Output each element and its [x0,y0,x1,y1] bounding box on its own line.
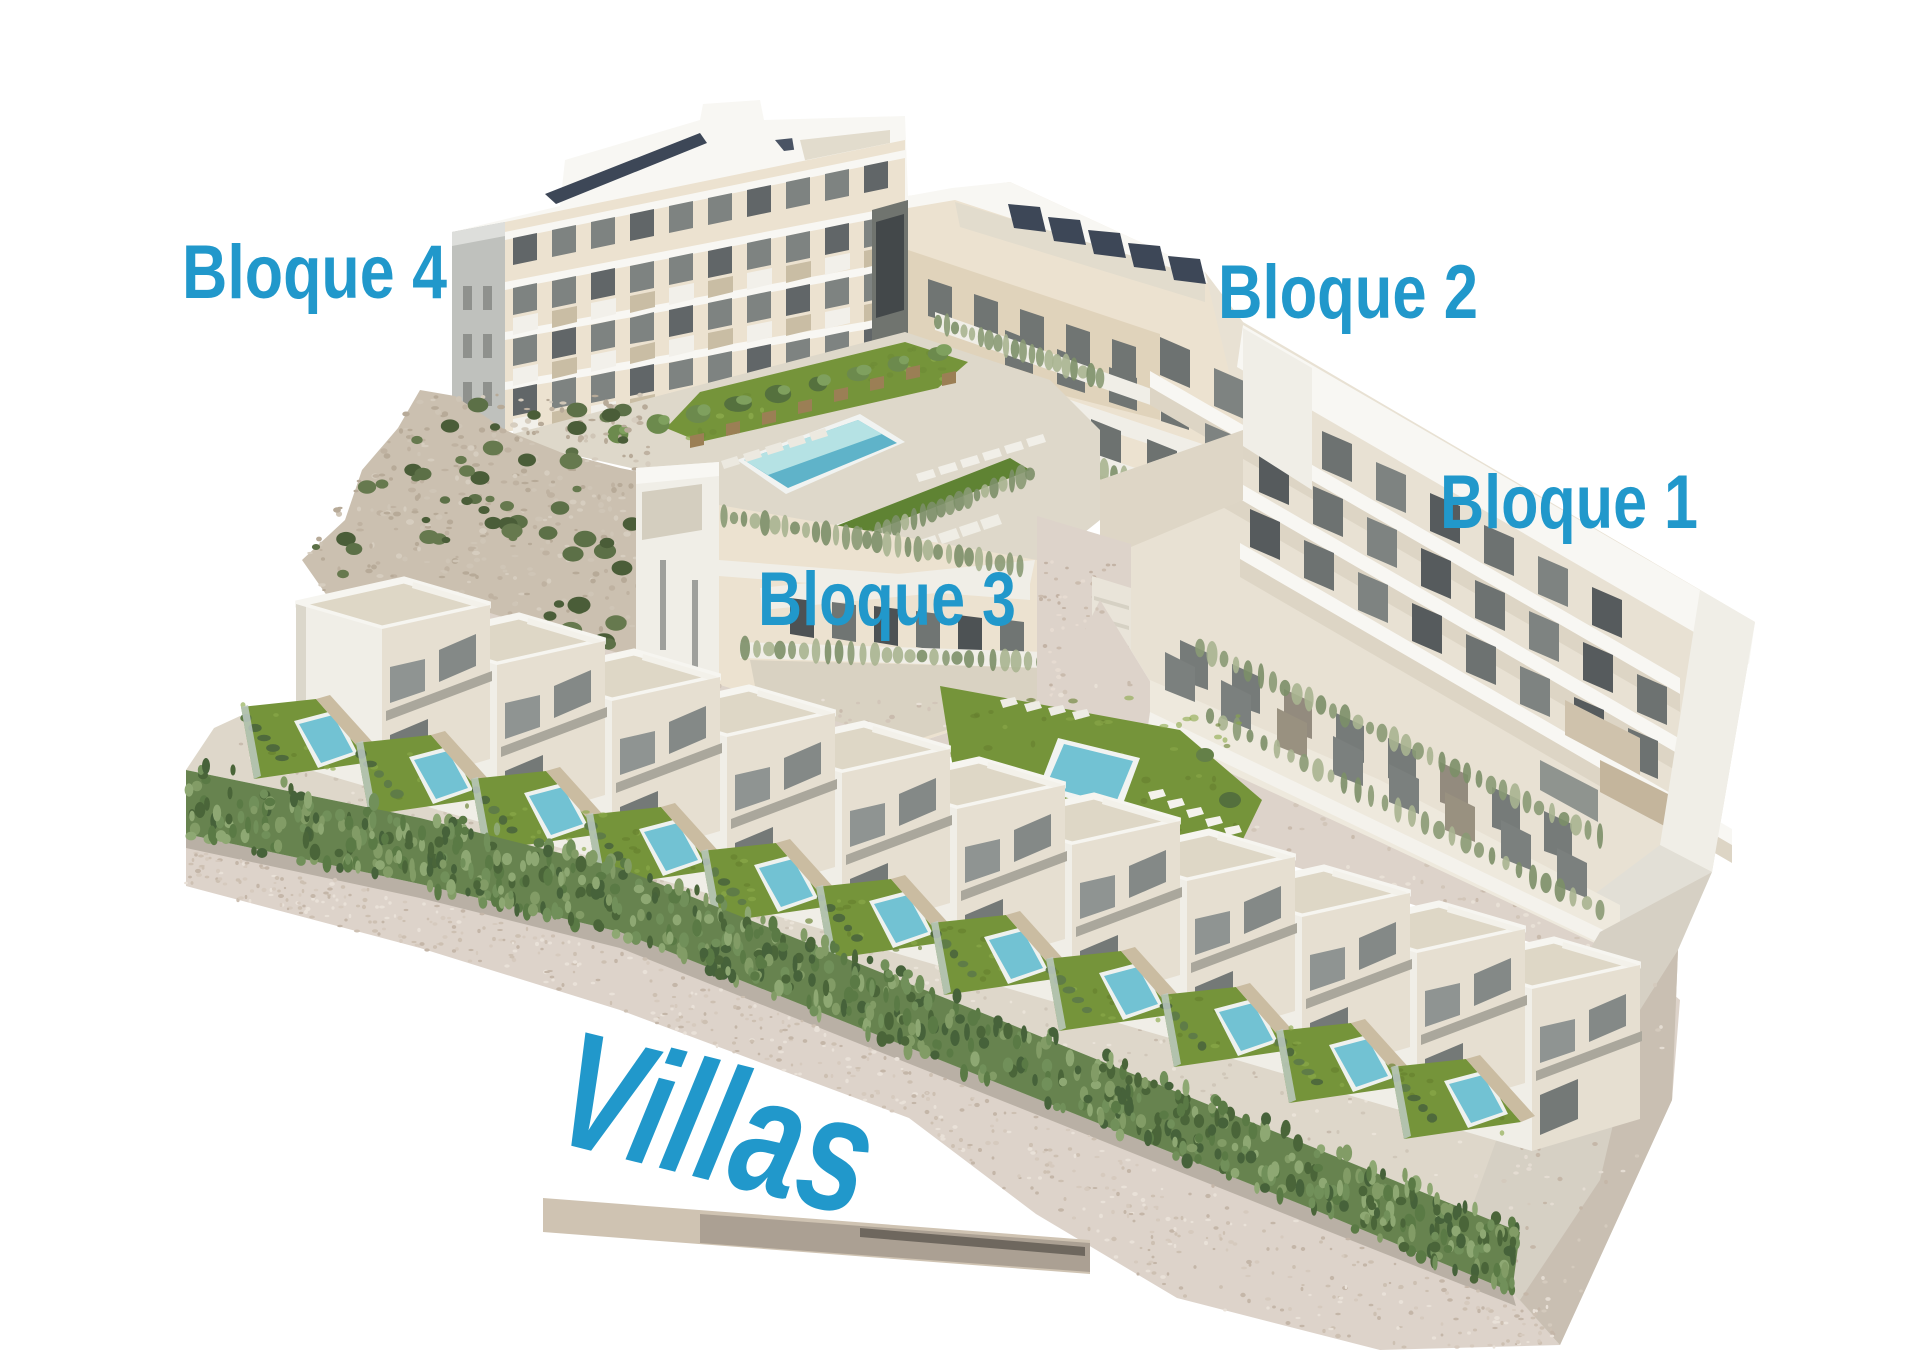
svg-text:Bloque 2: Bloque 2 [1218,250,1478,335]
svg-text:Bloque 3: Bloque 3 [758,557,1016,642]
svg-text:Bloque 1: Bloque 1 [1440,460,1698,545]
svg-text:Bloque 4: Bloque 4 [182,230,447,315]
